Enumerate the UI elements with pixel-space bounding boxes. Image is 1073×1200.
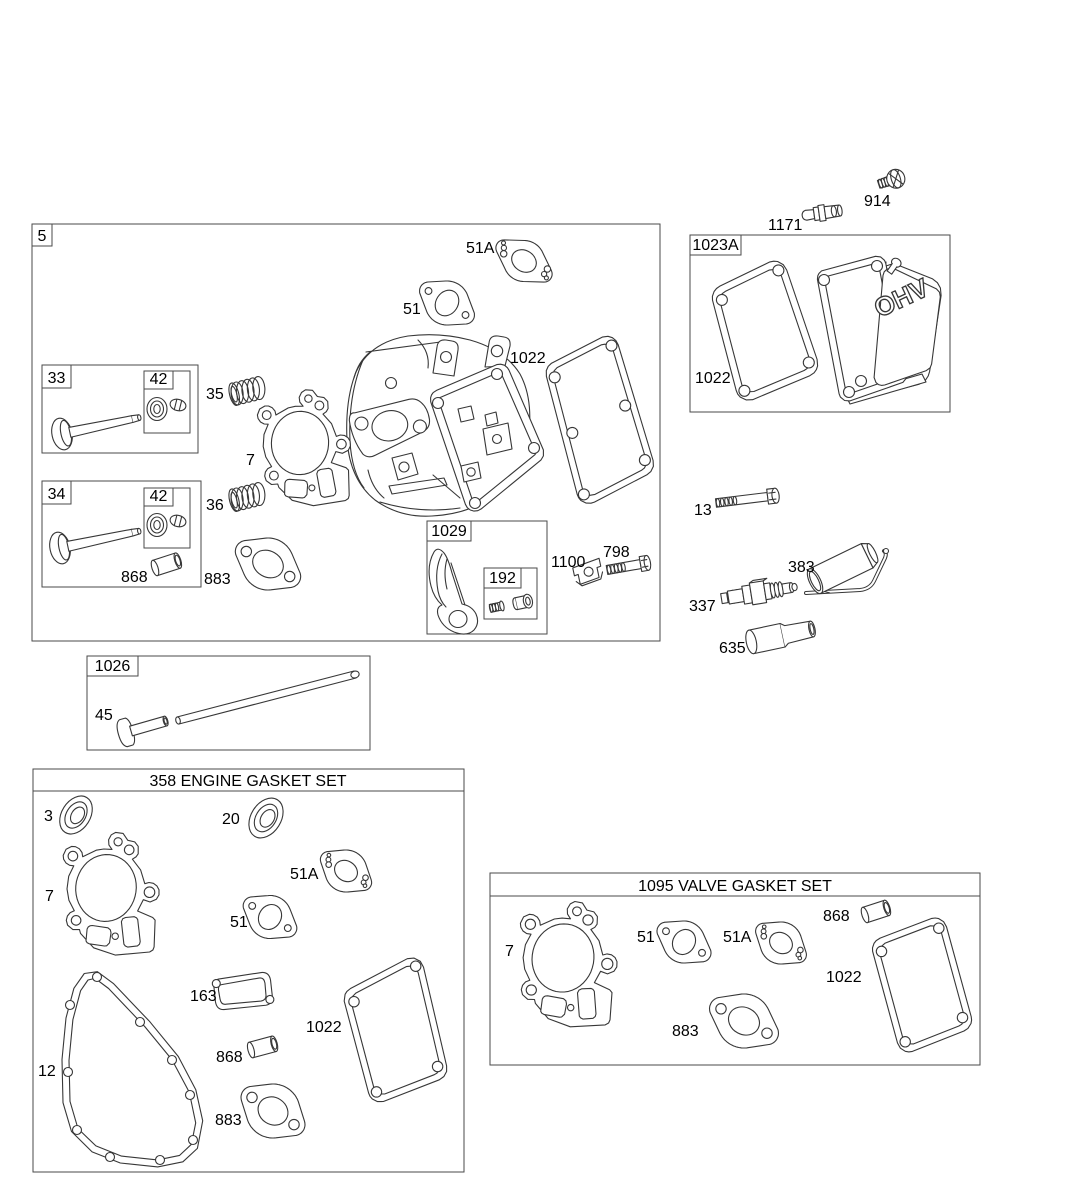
svg-text:914: 914 [864, 193, 891, 210]
svg-text:42: 42 [150, 488, 168, 505]
svg-text:51A: 51A [466, 240, 495, 257]
svg-text:51: 51 [637, 929, 655, 946]
svg-text:51A: 51A [723, 929, 752, 946]
svg-text:33: 33 [48, 370, 66, 387]
svg-text:358 ENGINE GASKET SET: 358 ENGINE GASKET SET [149, 773, 346, 790]
svg-text:1026: 1026 [95, 658, 131, 675]
svg-text:1022: 1022 [695, 370, 731, 387]
svg-text:13: 13 [694, 502, 712, 519]
svg-text:192: 192 [489, 570, 516, 587]
svg-text:7: 7 [505, 943, 514, 960]
svg-text:5: 5 [38, 228, 47, 245]
svg-text:883: 883 [204, 571, 231, 588]
svg-text:20: 20 [222, 811, 240, 828]
svg-text:51: 51 [230, 914, 248, 931]
svg-text:51A: 51A [290, 866, 319, 883]
svg-text:1095 VALVE GASKET SET: 1095 VALVE GASKET SET [638, 878, 832, 895]
svg-text:163: 163 [190, 988, 217, 1005]
svg-text:12: 12 [38, 1063, 56, 1080]
svg-text:1100: 1100 [551, 554, 586, 571]
svg-text:1022: 1022 [826, 969, 862, 986]
svg-text:36: 36 [206, 497, 224, 514]
svg-text:883: 883 [215, 1112, 242, 1129]
svg-text:1029: 1029 [431, 523, 467, 540]
svg-text:51: 51 [403, 301, 421, 318]
svg-text:1022: 1022 [306, 1019, 342, 1036]
svg-text:868: 868 [823, 908, 850, 925]
svg-text:883: 883 [672, 1023, 699, 1040]
svg-text:1022: 1022 [510, 350, 546, 367]
svg-text:45: 45 [95, 707, 113, 724]
svg-text:868: 868 [121, 569, 148, 586]
svg-text:42: 42 [150, 371, 168, 388]
svg-text:1171: 1171 [768, 217, 803, 234]
svg-text:868: 868 [216, 1049, 243, 1066]
svg-text:635: 635 [719, 640, 746, 657]
svg-text:7: 7 [246, 452, 255, 469]
svg-text:337: 337 [689, 598, 716, 615]
svg-text:34: 34 [48, 486, 66, 503]
svg-text:1023A: 1023A [692, 237, 739, 254]
svg-text:35: 35 [206, 386, 224, 403]
svg-text:798: 798 [603, 544, 630, 561]
svg-text:7: 7 [45, 888, 54, 905]
svg-text:383: 383 [788, 559, 815, 576]
svg-text:3: 3 [44, 808, 53, 825]
